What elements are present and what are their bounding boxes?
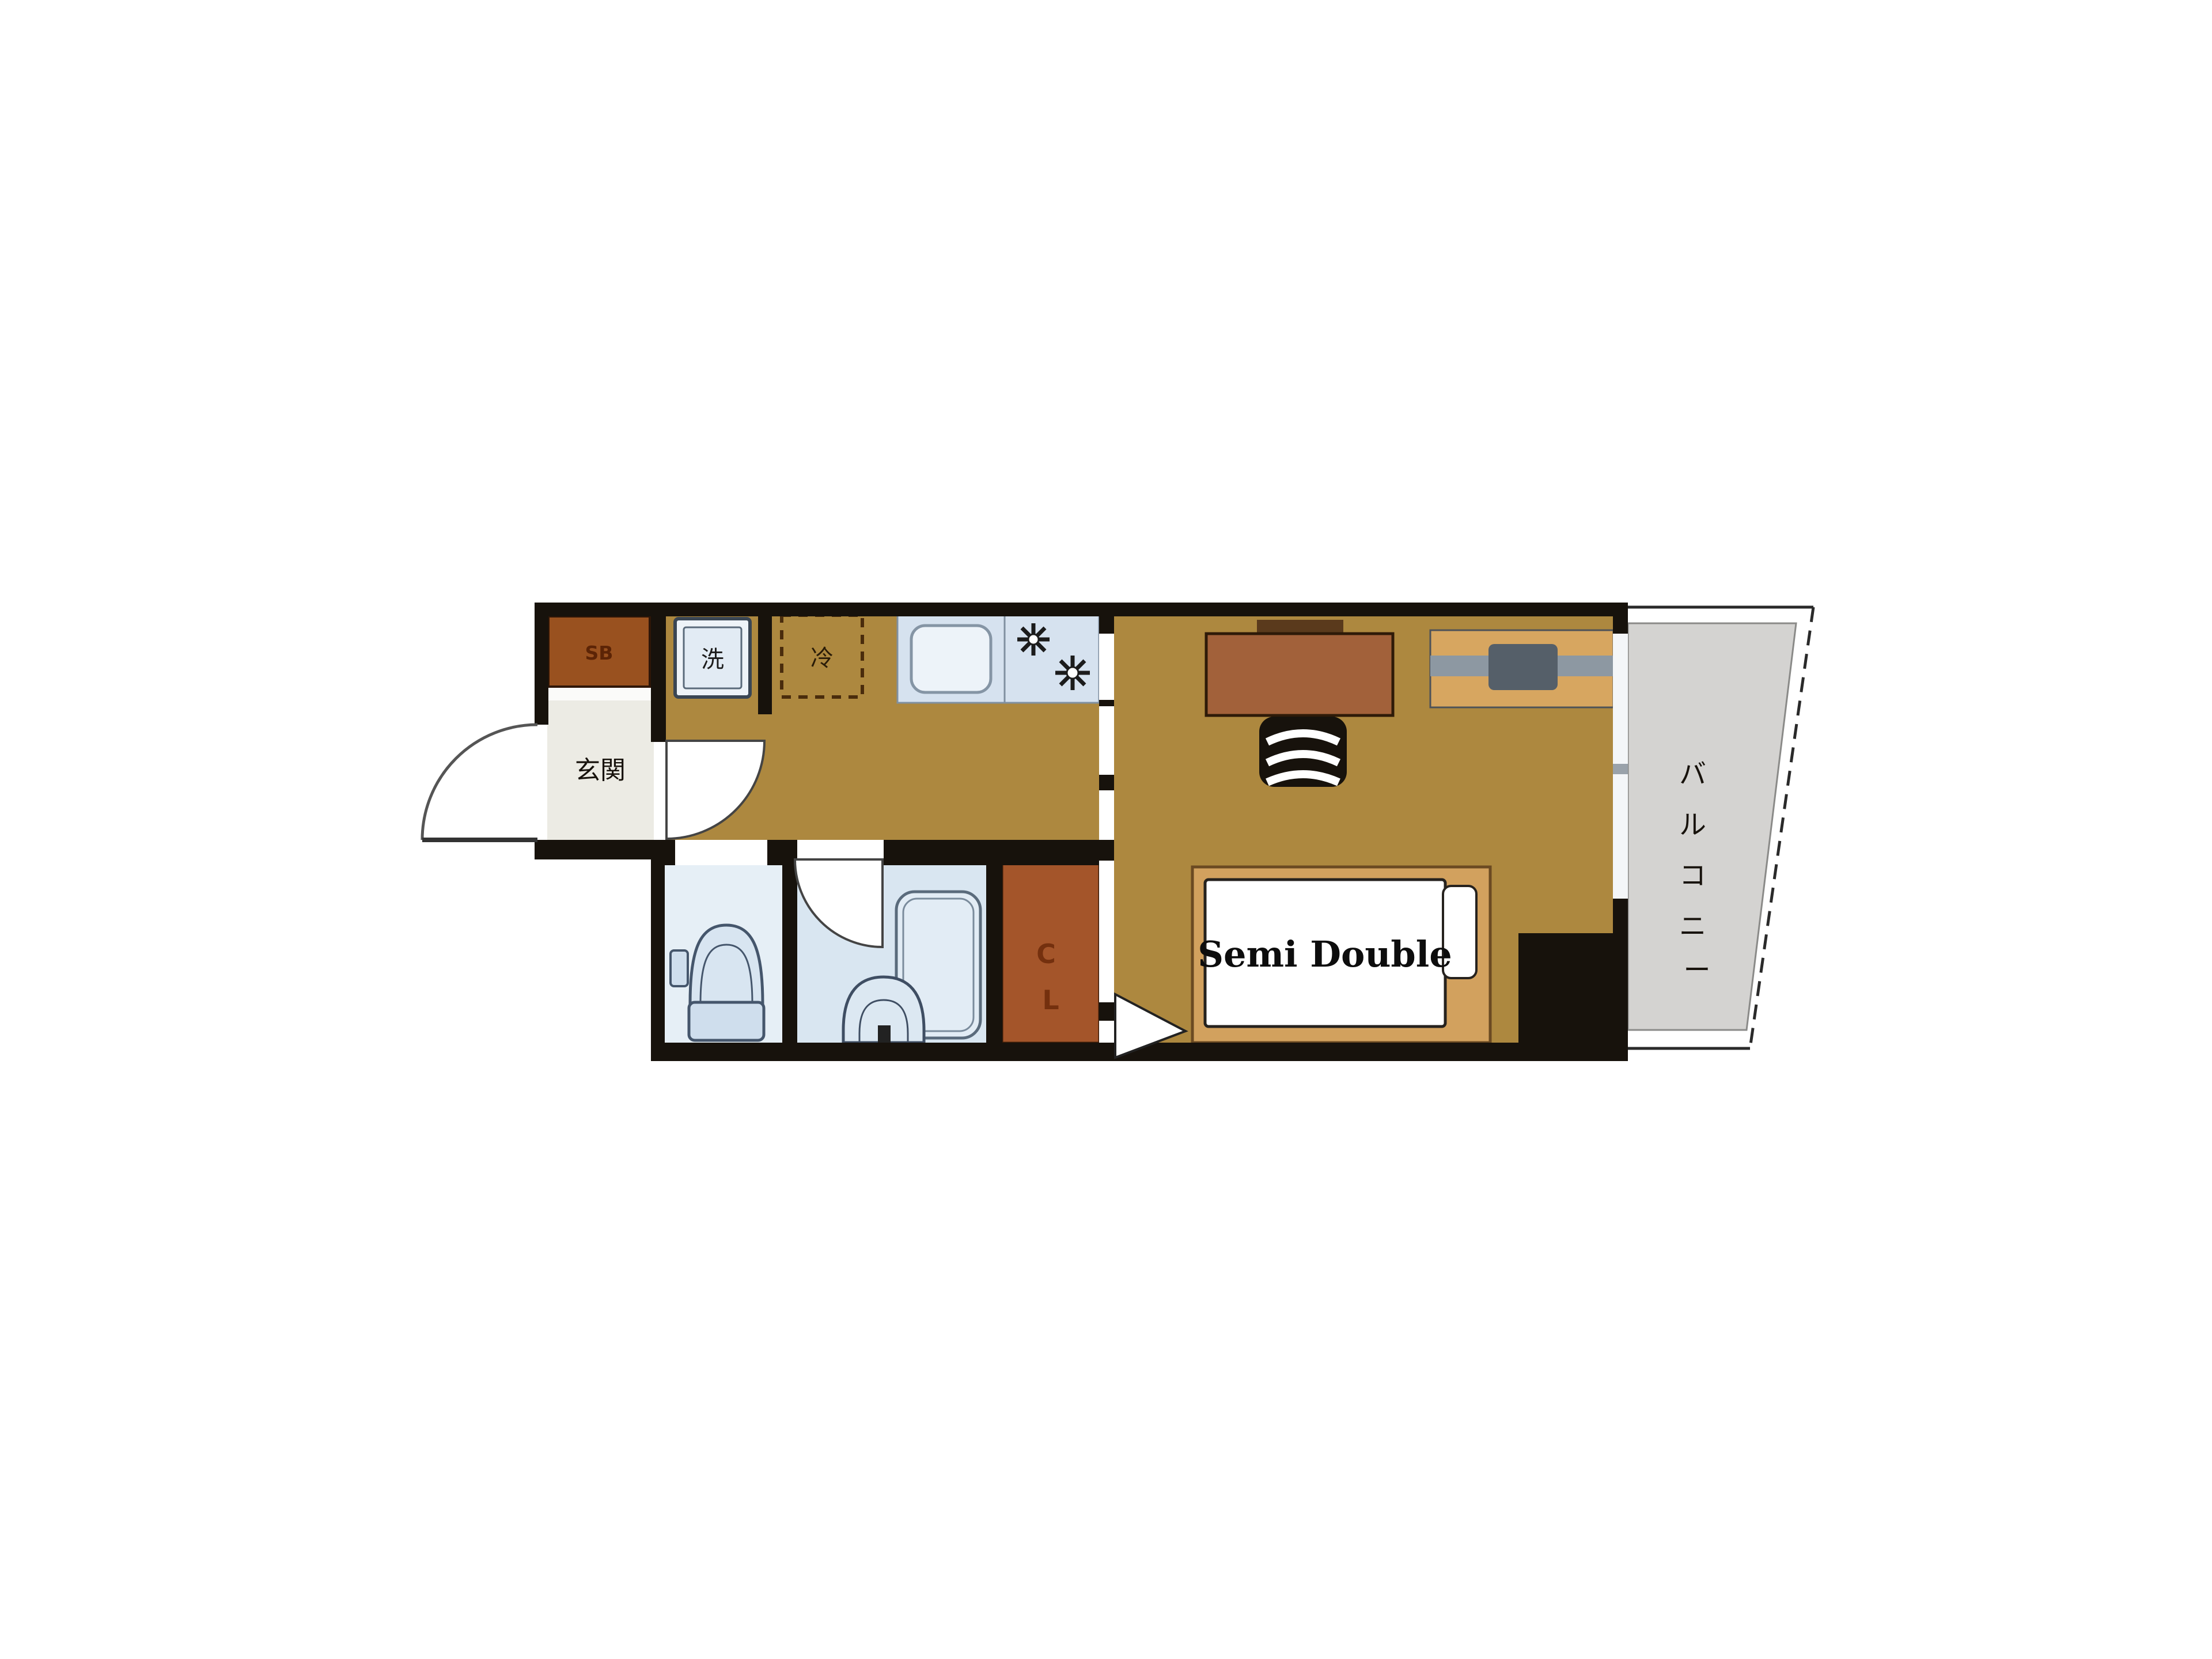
bed-size-label: Semi Double: [1198, 933, 1452, 975]
toilet-door-opening: [675, 840, 767, 865]
entrance-label: 玄関: [575, 756, 626, 785]
wall-entrance-bottom: [535, 840, 666, 859]
washing-machine-label: 洗: [701, 646, 724, 673]
stove: [1005, 615, 1099, 703]
partition-sliding-panel: [1099, 1021, 1114, 1043]
wall-washer-fridge-stub: [758, 615, 772, 714]
kitchen-sink-counter: [897, 615, 1005, 703]
washing-machine: 洗: [675, 619, 750, 697]
wall-lower-left: [651, 864, 665, 1061]
closet-opening: [1099, 861, 1114, 1002]
wall-entrance-left: [535, 603, 548, 725]
entrance-door-swing-arc: [422, 725, 537, 840]
partition-sliding-panel: [1099, 790, 1114, 840]
tv-board: [1430, 630, 1613, 707]
stove-counter: [1005, 615, 1099, 703]
shoe-box-label: SB: [585, 642, 613, 664]
wall-bath-closet: [986, 864, 1002, 1044]
tv: [1488, 644, 1558, 690]
refrigerator-label: 冷: [810, 645, 834, 672]
bath-washing-station: [843, 977, 924, 1043]
sink-basin: [911, 626, 991, 692]
toilet-flush-handle: [671, 950, 688, 986]
wall-entrance-kitchen-divider: [651, 615, 666, 742]
wall-top: [535, 603, 1628, 616]
stove-burner-icon: [1055, 656, 1090, 690]
desk: [1206, 634, 1393, 715]
pipe-shaft-black-box: [1518, 933, 1613, 1046]
floor-plan-page: バ ル コ ニ ー 洗 冷: [0, 0, 2212, 1659]
toilet-tank: [689, 1002, 764, 1040]
balcony: バ ル コ ニ ー: [1627, 607, 1813, 1048]
stove-burner-icon: [1017, 623, 1050, 656]
entrance-threshold: [547, 687, 654, 700]
wash-station-drain: [878, 1025, 891, 1043]
balcony-window-joint: [1613, 764, 1628, 774]
bed: Semi Double: [1192, 867, 1490, 1043]
floor-plan-drawing: バ ル コ ニ ー 洗 冷: [0, 0, 2212, 1659]
partition-sliding-panel: [1099, 634, 1114, 700]
balcony-window-pane: [1613, 774, 1628, 899]
wall-toilet-bath: [782, 864, 797, 1044]
balcony-window-pane: [1613, 634, 1628, 764]
partition-sliding-panel: [1099, 706, 1114, 775]
